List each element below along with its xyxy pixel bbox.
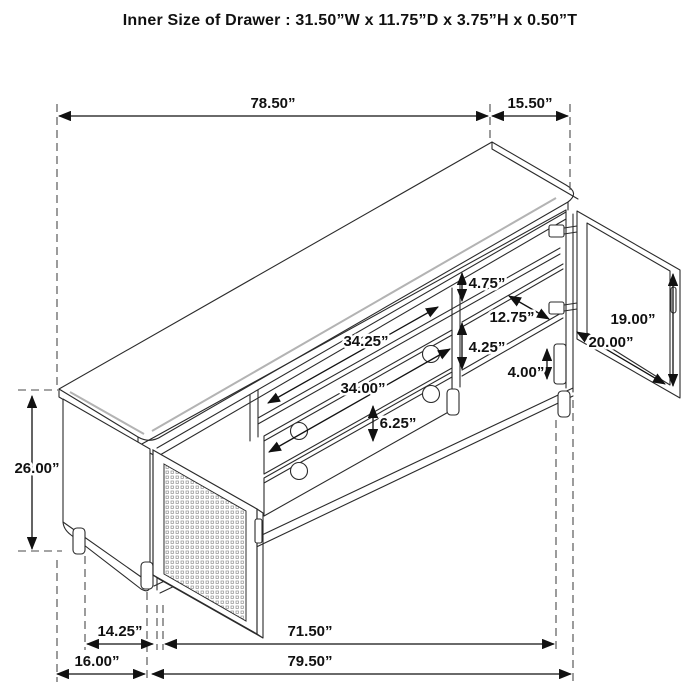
dim-overall-width: 79.50” bbox=[152, 653, 571, 674]
dim-upper-opening-label: 4.75” bbox=[469, 275, 506, 292]
left-rear-leg bbox=[73, 528, 85, 554]
isometric-drawing: 78.50” 15.50” 4.75” 12.75” 4.25” 4.00” 1… bbox=[0, 0, 700, 700]
dim-right-door-width-label: 20.00” bbox=[588, 334, 633, 351]
dim-side-depth: 16.00” bbox=[57, 653, 145, 674]
dim-leg-height: 4.00” bbox=[508, 349, 547, 381]
dim-cabinet-height: 26.00” bbox=[14, 396, 59, 549]
dim-right-opening-label: 12.75” bbox=[489, 309, 534, 326]
dim-lower-opening-height: 4.25” bbox=[462, 323, 505, 369]
dim-left-door-width-label: 14.25” bbox=[97, 623, 142, 640]
dim-base-width-label: 71.50” bbox=[287, 623, 332, 640]
dim-leg-height-label: 4.00” bbox=[508, 364, 545, 381]
dim-right-door-height-label: 19.00” bbox=[610, 311, 655, 328]
dim-top-width: 78.50” bbox=[59, 95, 488, 116]
dim-side-depth-label: 16.00” bbox=[74, 653, 119, 670]
dim-base-width: 71.50” bbox=[165, 623, 554, 644]
dim-drawer-front-height-label: 6.25” bbox=[380, 415, 417, 432]
dim-drawer-width-label: 34.00” bbox=[340, 380, 385, 397]
back-right-leg bbox=[554, 344, 566, 384]
top-panel bbox=[59, 142, 578, 445]
left-mesh-door bbox=[153, 450, 263, 638]
dim-top-depth: 15.50” bbox=[492, 95, 568, 116]
right-front-leg bbox=[558, 391, 570, 417]
drawer-knob bbox=[291, 463, 308, 480]
dim-lower-opening-label: 4.25” bbox=[469, 339, 506, 356]
right-open-door bbox=[549, 211, 680, 398]
middle-leg bbox=[447, 389, 459, 415]
dim-cabinet-height-label: 26.00” bbox=[14, 460, 59, 477]
furniture-dimension-diagram: Inner Size of Drawer : 31.50”W x 11.75”D… bbox=[0, 0, 700, 700]
dim-top-width-label: 78.50” bbox=[250, 95, 295, 112]
dim-overall-width-label: 79.50” bbox=[287, 653, 332, 670]
mesh-door-handle bbox=[255, 519, 262, 543]
dim-middle-opening-label: 34.25” bbox=[343, 333, 388, 350]
dim-top-depth-label: 15.50” bbox=[507, 95, 552, 112]
dim-left-door-width: 14.25” bbox=[87, 623, 153, 644]
left-front-leg bbox=[141, 562, 153, 589]
drawer-knob bbox=[423, 386, 440, 403]
